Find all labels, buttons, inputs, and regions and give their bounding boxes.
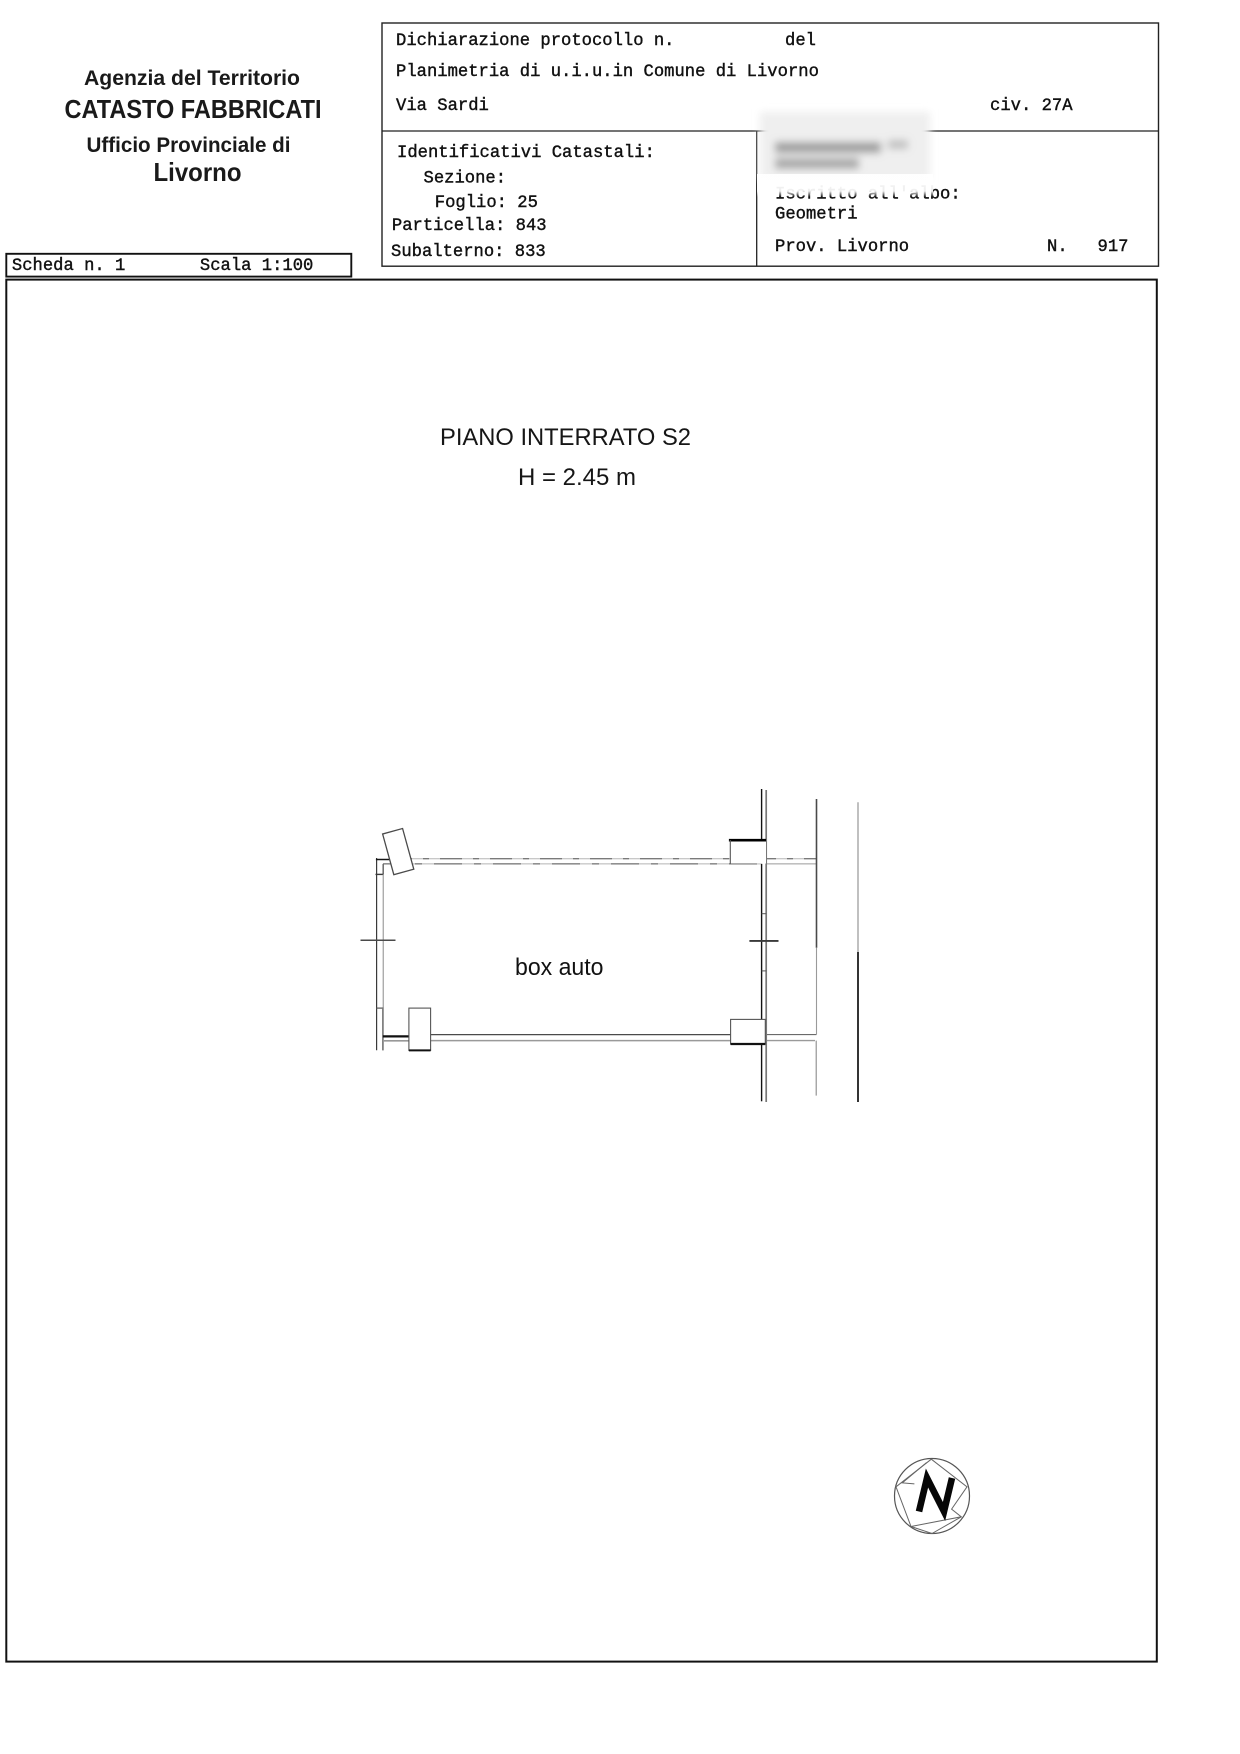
svg-text:Particella: 843: Particella: 843	[392, 217, 547, 236]
svg-text:Scala 1:100: Scala 1:100	[200, 257, 313, 276]
svg-text:Identificativi Catastali:: Identificativi Catastali:	[397, 144, 655, 163]
svg-text:Agenzia del Territorio: Agenzia del Territorio	[84, 66, 300, 90]
svg-text:H = 2.45 m: H = 2.45 m	[518, 464, 636, 491]
svg-text:N.: N.	[1047, 238, 1068, 257]
svg-text:Via Sardi: Via Sardi	[396, 97, 489, 116]
svg-text:Subalterno: 833: Subalterno: 833	[391, 243, 546, 262]
svg-text:Dichiarazione protocollo n.: Dichiarazione protocollo n.	[396, 32, 674, 51]
svg-text:Ufficio Provinciale di: Ufficio Provinciale di	[87, 133, 291, 157]
svg-text:Prov. Livorno: Prov. Livorno	[775, 238, 909, 257]
svg-text:civ. 27A: civ. 27A	[990, 97, 1073, 116]
svg-text:del: del	[785, 32, 816, 51]
svg-text:917: 917	[1098, 238, 1129, 257]
svg-text:Foglio: 25: Foglio: 25	[435, 194, 538, 213]
svg-text:Livorno: Livorno	[154, 157, 242, 187]
svg-text:PIANO INTERRATO S2: PIANO INTERRATO S2	[440, 424, 691, 451]
svg-text:Scheda n. 1: Scheda n. 1	[12, 257, 125, 276]
svg-text:Planimetria di u.i.u.in Comune: Planimetria di u.i.u.in Comune di Livorn…	[396, 63, 819, 82]
svg-text:Sezione:: Sezione:	[424, 170, 507, 189]
svg-text:CATASTO FABBRICATI: CATASTO FABBRICATI	[65, 94, 322, 124]
svg-text:box auto: box auto	[515, 954, 604, 981]
svg-text:Geometri: Geometri	[775, 205, 858, 224]
